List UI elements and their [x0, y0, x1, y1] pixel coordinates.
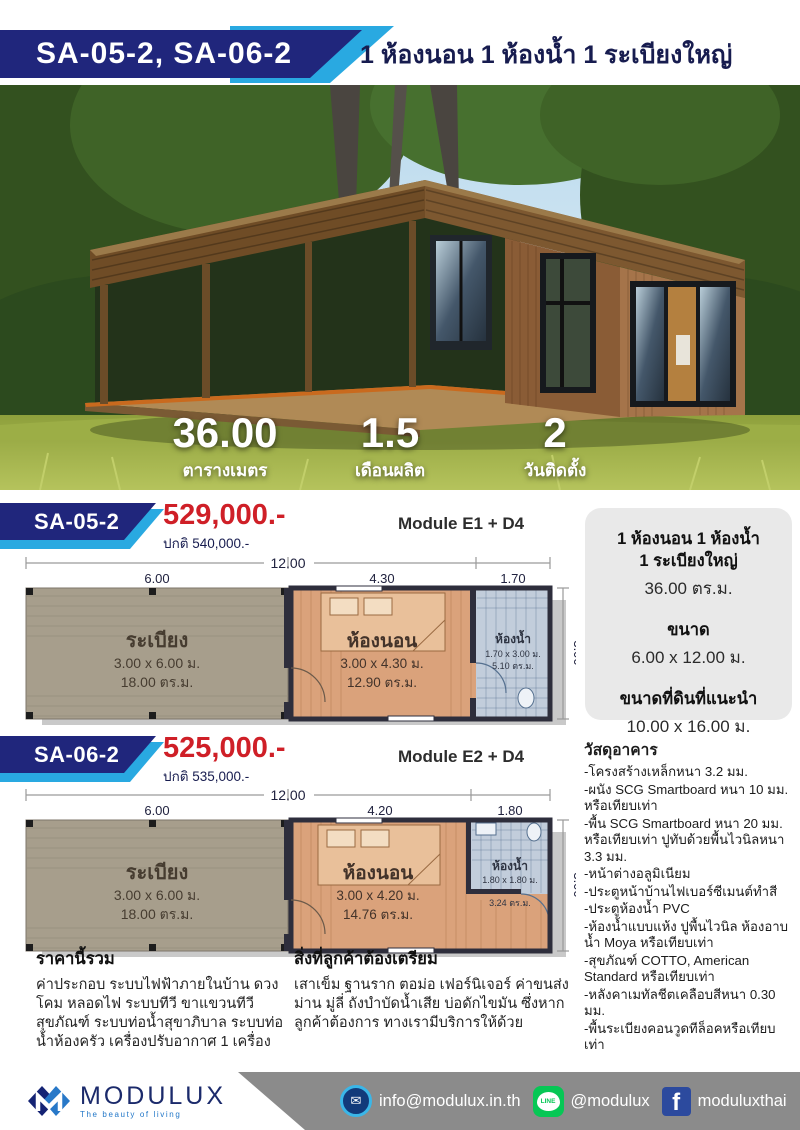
plan2-bath-area: 3.24 ตร.ม.	[489, 898, 531, 908]
line-icon: LINE	[533, 1086, 564, 1117]
material-item: -หลังคาเมทัลชีตเคลือบสีหนา 0.30 มม.	[584, 987, 796, 1020]
header-banner: SA-05-2, SA-06-2	[0, 30, 368, 78]
material-item: -สุขภัณฑ์ COTTO, American Standard หรือเ…	[584, 953, 796, 986]
logo-text: MODULUX The beauty of living	[80, 1084, 226, 1119]
plan1-bedroom-area: 12.90 ตร.ม.	[347, 675, 417, 690]
brand-name: MODULUX	[80, 1084, 226, 1109]
plan2-dim-depth: 3.00	[571, 872, 576, 897]
customer-prepares-title: สิ่งที่ลูกค้าต้องเตรียม	[294, 946, 586, 972]
customer-prepares-body: เสาเข็ม ฐานราก ตอม่อ เฟอร์นิเจอร์ ค่าขนส…	[294, 976, 586, 1033]
plan1-dim-terrace: 6.00	[144, 571, 169, 586]
module-label-sa052: Module E1 + D4	[398, 514, 588, 534]
hero-stats: 36.00 ตารางเมตร 1.5 เดือนผลิต 2 วันติดตั…	[150, 411, 630, 484]
plan1-bath-area: 5.10 ตร.ม.	[492, 661, 534, 671]
materials-title: วัสดุอาคาร	[584, 737, 796, 762]
stat-production: 1.5 เดือนผลิต	[315, 411, 465, 484]
price-includes-title: ราคานี้รวม	[36, 946, 290, 972]
plan1-terrace-size: 3.00 x 6.00 ม.	[114, 655, 200, 671]
email-icon: ✉	[340, 1085, 372, 1117]
plan2-dim-bath: 1.80	[497, 803, 522, 818]
info-line2: 1 ระเบียงใหญ่	[585, 550, 792, 572]
plan2-bath-name: ห้องน้ำ	[492, 856, 528, 873]
hero-photo: 36.00 ตารางเมตร 1.5 เดือนผลิต 2 วันติดตั…	[0, 85, 800, 490]
customer-prepares-note: สิ่งที่ลูกค้าต้องเตรียม เสาเข็ม ฐานราก ต…	[294, 946, 586, 1033]
stat-production-label: เดือนผลิต	[315, 457, 465, 484]
plan1-dim-depth: 3.00	[571, 640, 576, 665]
material-item: -ห้องน้ำแบบแห้ง ปูพื้นไวนิล ห้องอาบน้ำ M…	[584, 919, 796, 952]
facebook-id: moduluxthai	[698, 1092, 787, 1111]
plan2-bedroom-area: 14.76 ตร.ม.	[343, 907, 413, 922]
modulux-logo-icon	[26, 1079, 72, 1123]
stat-area-label: ตารางเมตร	[150, 457, 300, 484]
plan1-bedroom-name: ห้องนอน	[347, 630, 418, 652]
stat-area: 36.00 ตารางเมตร	[150, 411, 300, 484]
plan1-dim-overall: 12.00	[270, 555, 305, 571]
floor-plan-sa052: 12.00 6.00 4.30 1.70	[18, 550, 576, 728]
badge-sa052-label: SA-05-2	[0, 509, 119, 535]
model-codes-title: SA-05-2, SA-06-2	[0, 37, 292, 71]
material-item: -ประตูห้องน้ำ PVC	[584, 901, 796, 918]
plan1-bath-name: ห้องน้ำ	[495, 629, 531, 646]
price-sa052: 529,000.-	[163, 500, 383, 530]
plan2-bedroom-size: 3.00 x 4.20 ม.	[336, 888, 419, 903]
plan1-bedroom-size: 3.00 x 4.30 ม.	[340, 656, 423, 671]
plan2-dim-terrace: 6.00	[144, 803, 169, 818]
stat-install: 2 วันติดตั้ง	[480, 411, 630, 484]
footer: MODULUX The beauty of living ✉ info@modu…	[0, 1072, 800, 1130]
plan2-terrace-name: ระเบียง	[126, 861, 189, 884]
brochure-page: SA-05-2, SA-06-2 1 ห้องนอน 1 ห้องน้ำ 1 ร…	[0, 0, 800, 1130]
floor-plan-sa062: 12.00 6.00 4.20 1.80	[18, 782, 576, 960]
page-subtitle: 1 ห้องนอน 1 ห้องน้ำ 1 ระเบียงใหญ่	[360, 36, 792, 74]
material-item: -พื้นระเบียงคอนวูดทีล็อคหรือเทียบเท่า	[584, 1021, 796, 1054]
info-land-label: ขนาดที่ดินที่แนะนำ	[585, 688, 792, 710]
brand-tagline: The beauty of living	[80, 1110, 226, 1119]
plan2-terrace-area: 18.00 ตร.ม.	[121, 906, 194, 922]
plan2-dim-bedroom: 4.20	[367, 803, 392, 818]
price-block-sa062: 525,000.- ปกติ 535,000.-	[163, 733, 383, 787]
material-item: -พื้น SCG Smartboard หนา 20 มม. หรือเทีย…	[584, 816, 796, 866]
line-contact[interactable]: LINE @modulux	[533, 1086, 650, 1117]
module-label-sa062: Module E2 + D4	[398, 747, 588, 767]
info-size-label: ขนาด	[585, 619, 792, 641]
email-address: info@modulux.in.th	[379, 1092, 521, 1111]
materials-list: วัสดุอาคาร -โครงสร้างเหล็กหนา 3.2 มม. -ผ…	[584, 737, 796, 1055]
badge-sa062-label: SA-06-2	[0, 742, 119, 768]
price-includes-note: ราคานี้รวม ค่าประกอบ ระบบไฟฟ้าภายในบ้าน …	[36, 946, 290, 1052]
email-contact[interactable]: ✉ info@modulux.in.th	[340, 1085, 521, 1117]
plan1-bath-size: 1.70 x 3.00 ม.	[485, 649, 540, 659]
plan2-terrace-size: 3.00 x 6.00 ม.	[114, 887, 200, 903]
plan1-dim-bedroom: 4.30	[369, 571, 394, 586]
plan1-dim-bath: 1.70	[500, 571, 525, 586]
line-id: @modulux	[571, 1092, 650, 1111]
price-block-sa052: 529,000.- ปกติ 540,000.-	[163, 500, 383, 554]
stat-install-value: 2	[480, 411, 630, 455]
footer-contacts: ✉ info@modulux.in.th LINE @modulux f mod…	[340, 1072, 787, 1130]
stat-install-label: วันติดตั้ง	[480, 457, 630, 484]
price-includes-body: ค่าประกอบ ระบบไฟฟ้าภายในบ้าน ดวงโคม หลอด…	[36, 976, 290, 1052]
plan2-bath-size: 1.80 x 1.80 ม.	[482, 875, 537, 885]
material-item: -โครงสร้างเหล็กหนา 3.2 มม.	[584, 764, 796, 781]
material-item: -หน้าต่างอลูมิเนียม	[584, 866, 796, 883]
stat-area-value: 36.00	[150, 411, 300, 455]
plan2-dim-overall: 12.00	[270, 787, 305, 803]
facebook-contact[interactable]: f moduluxthai	[662, 1087, 787, 1116]
material-item: -ประตูหน้าบ้านไฟเบอร์ซีเมนต์ทำสี	[584, 884, 796, 901]
plan1-terrace-area: 18.00 ตร.ม.	[121, 674, 194, 690]
plan1-terrace-name: ระเบียง	[126, 629, 189, 652]
stat-production-value: 1.5	[315, 411, 465, 455]
info-panel: 1 ห้องนอน 1 ห้องน้ำ 1 ระเบียงใหญ่ 36.00 …	[585, 508, 792, 720]
info-area: 36.00 ตร.ม.	[585, 575, 792, 602]
facebook-icon: f	[662, 1087, 691, 1116]
info-size-value: 6.00 x 12.00 ม.	[585, 644, 792, 671]
plan2-bedroom-name: ห้องนอน	[343, 862, 414, 884]
brand-logo: MODULUX The beauty of living	[26, 1079, 226, 1123]
price-sa062: 525,000.-	[163, 733, 383, 763]
info-line1: 1 ห้องนอน 1 ห้องน้ำ	[585, 528, 792, 550]
info-land-value: 10.00 x 16.00 ม.	[585, 713, 792, 740]
material-item: -ผนัง SCG Smartboard หนา 10 มม. หรือเทีย…	[584, 782, 796, 815]
